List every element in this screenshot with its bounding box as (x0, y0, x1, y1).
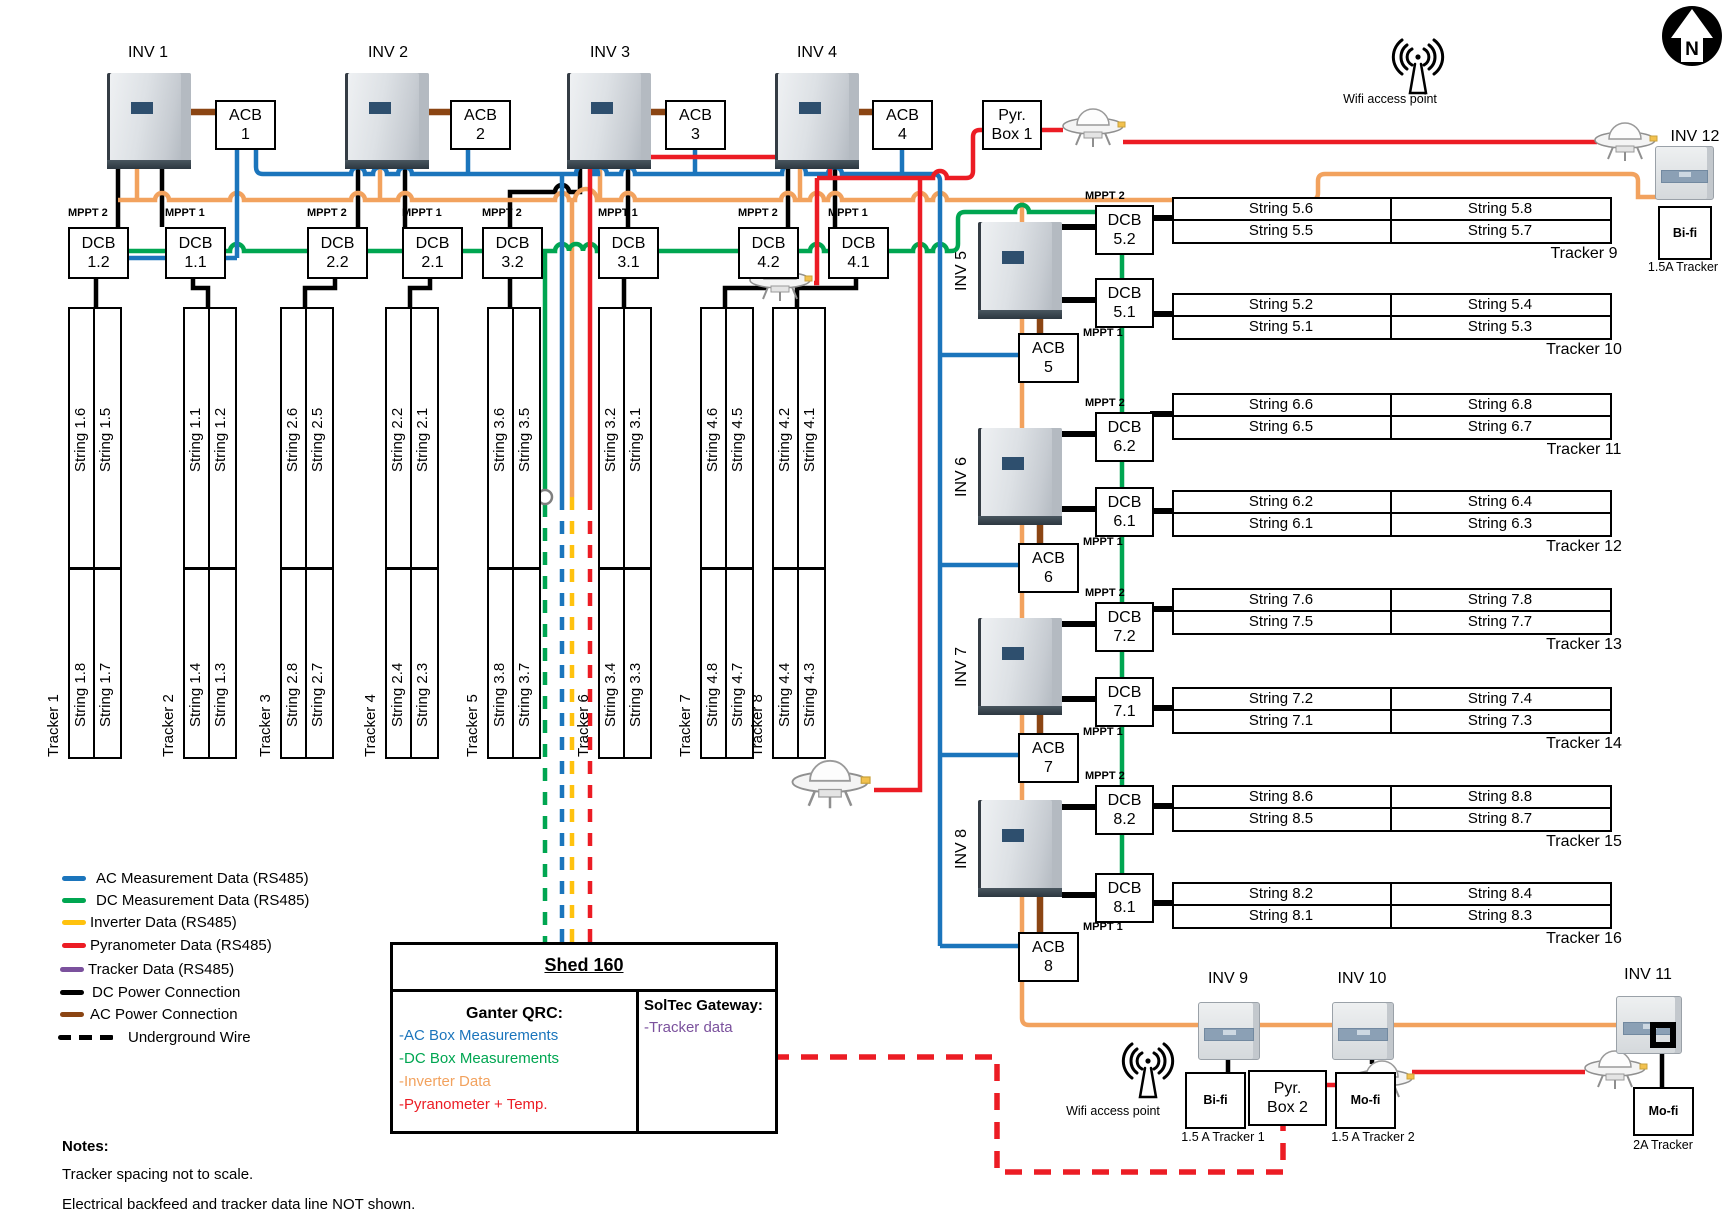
dcb-label: DCB (1108, 493, 1142, 512)
dcb-label: DCB (1108, 683, 1142, 702)
tracker-15-label: Tracker 15 (1524, 833, 1644, 851)
acb-label: ACB (679, 106, 712, 125)
ganter-item: -DC Box Measurements (399, 1050, 559, 1067)
legend-item: Underground Wire (128, 1029, 251, 1046)
dcb-7-1-box: DCB7.1 (1095, 677, 1154, 727)
mppt-label: MPPT 2 (307, 207, 347, 219)
inv-8-label: INV 8 (950, 806, 976, 892)
legend-swatch-ac (62, 876, 86, 881)
mppt-label: MPPT 1 (1083, 327, 1123, 339)
mppt-label: MPPT 2 (68, 207, 108, 219)
inv-5-label: INV 5 (950, 228, 976, 314)
mppt-label: MPPT 2 (1085, 770, 1125, 782)
string-cell: String 7.3 (1393, 711, 1607, 730)
string-cell: String 6.2 (1174, 492, 1388, 511)
inverter-image (978, 800, 1062, 897)
acb-label: ACB (464, 106, 497, 125)
ganter-title: Ganter QRC: (393, 1005, 636, 1023)
svg-text:N: N (1685, 39, 1699, 60)
tracker-sub-label: 1.5 A Tracker 1 (1168, 1130, 1278, 1144)
notes-line: Tracker spacing not to scale. (62, 1166, 253, 1183)
dcb-label: DCB (842, 234, 876, 253)
dcb-number: 8.1 (1113, 898, 1135, 917)
string-label: String 2.5 (305, 385, 330, 495)
dcb-label: DCB (1108, 418, 1142, 437)
inv-1-label: INV 1 (108, 44, 188, 62)
legend-item: AC Measurement Data (RS485) (96, 870, 309, 887)
pyr-box-1: Pyr.Box 1 (982, 100, 1042, 150)
dcb-label: DCB (496, 234, 530, 253)
dcb-6-1-box: DCB6.1 (1095, 487, 1154, 537)
mo-fi-box: Mo-fi (1633, 1087, 1694, 1136)
inv-12-label: INV 12 (1660, 128, 1729, 146)
tracker-15-table: String 8.6 String 8.8 String 8.5 String … (1172, 785, 1612, 832)
mppt-label: MPPT 1 (402, 207, 442, 219)
mppt-label: MPPT 1 (828, 207, 868, 219)
string-label: String 1.7 (93, 640, 118, 750)
inverter-image (1655, 146, 1714, 200)
dcb-number: 3.2 (501, 253, 523, 272)
ganter-item: -Inverter Data (399, 1073, 491, 1090)
dcb-number: 7.2 (1113, 627, 1135, 646)
dcb-label: DCB (1108, 879, 1142, 898)
tracker-6-label: Tracker 6 (572, 665, 596, 757)
dcb-2-1-box: DCB2.1 (402, 227, 463, 279)
legend-item: DC Power Connection (92, 984, 240, 1001)
inv-11-connector (1650, 1022, 1676, 1048)
string-cell: String 6.5 (1174, 417, 1388, 436)
string-label: String 4.4 (772, 640, 797, 750)
pyr-box-line1: Pyr. (1274, 1079, 1302, 1098)
dcb-number: 6.1 (1113, 512, 1135, 531)
inv-10-label: INV 10 (1327, 970, 1397, 988)
acb-3-box: ACB3 (665, 100, 726, 150)
dcb-number: 6.2 (1113, 437, 1135, 456)
tracker-2-label: Tracker 2 (157, 665, 181, 757)
inverter-image (1198, 1002, 1260, 1060)
inverter-image (978, 618, 1062, 715)
string-cell: String 7.6 (1174, 590, 1388, 609)
acb-2-box: ACB2 (450, 100, 511, 150)
string-label: String 3.5 (512, 385, 537, 495)
dcb-label: DCB (321, 234, 355, 253)
string-cell: String 8.7 (1393, 809, 1607, 828)
string-label: String 1.1 (183, 385, 208, 495)
wifi-icon (1123, 1044, 1172, 1097)
string-cell: String 6.3 (1393, 514, 1607, 533)
string-cell: String 8.5 (1174, 809, 1388, 828)
tracker-13-label: Tracker 13 (1524, 636, 1644, 654)
tracker-12-label: Tracker 12 (1524, 538, 1644, 556)
dcb-2-2-box: DCB2.2 (307, 227, 368, 279)
mppt-label: MPPT 2 (1085, 587, 1125, 599)
dcb-number: 2.1 (421, 253, 443, 272)
string-cell: String 7.4 (1393, 689, 1607, 708)
string-label: String 4.3 (797, 640, 822, 750)
legend-swatch-dc (62, 898, 86, 903)
mppt-label: MPPT 1 (1083, 726, 1123, 738)
string-label: String 2.6 (280, 385, 305, 495)
solar-plant-wiring-diagram: N INV 1 INV 2 INV 3 INV 4 ACB1 ACB2 ACB3… (0, 0, 1729, 1222)
string-label: String 4.6 (700, 385, 725, 495)
acb-6-box: ACB6 (1018, 543, 1079, 593)
dcb-4-1-box: DCB4.1 (828, 227, 889, 279)
string-label: String 3.4 (598, 640, 623, 750)
pyr-box-line1: Pyr. (998, 106, 1026, 125)
acb-number: 7 (1044, 758, 1053, 777)
tracker-11-label: Tracker 11 (1524, 441, 1644, 459)
string-cell: String 6.1 (1174, 514, 1388, 533)
dcb-7-2-box: DCB7.2 (1095, 602, 1154, 652)
inverter-image (775, 73, 859, 169)
acb-number: 1 (241, 125, 250, 144)
tracker-sub-label: 2A Tracker (1618, 1138, 1708, 1152)
dcb-1-2-box: DCB1.2 (68, 227, 129, 279)
wifi-access-point-label: Wifi access point (1315, 92, 1465, 106)
string-cell: String 8.1 (1174, 906, 1388, 925)
dcb-number: 5.1 (1113, 303, 1135, 322)
string-label: String 3.6 (487, 385, 512, 495)
tracker-11-table: String 6.6 String 6.8 String 6.5 String … (1172, 393, 1612, 440)
dcb-number: 1.2 (87, 253, 109, 272)
acb-number: 3 (691, 125, 700, 144)
acb-5-box: ACB5 (1018, 333, 1079, 383)
inverter-image (978, 222, 1062, 319)
mppt-label: MPPT 2 (1085, 397, 1125, 409)
dcb-number: 1.1 (184, 253, 206, 272)
string-label: String 1.4 (183, 640, 208, 750)
dcb-label: DCB (416, 234, 450, 253)
inv-11-label: INV 11 (1613, 966, 1683, 984)
string-label: String 3.8 (487, 640, 512, 750)
string-label: String 2.3 (410, 640, 435, 750)
bi-fi-label: Bi-fi (1673, 224, 1697, 243)
mppt-label: MPPT 1 (598, 207, 638, 219)
dcb-number: 7.1 (1113, 702, 1135, 721)
acb-label: ACB (229, 106, 262, 125)
string-label: String 2.1 (410, 385, 435, 495)
string-cell: String 6.6 (1174, 395, 1388, 414)
dcb-number: 2.2 (326, 253, 348, 272)
string-label: String 4.8 (700, 640, 725, 750)
acb-number: 6 (1044, 568, 1053, 587)
string-label: String 1.5 (93, 385, 118, 495)
legend-swatch-inverter (62, 920, 86, 925)
string-cell: String 8.2 (1174, 884, 1388, 903)
bi-fi-box: Bi-fi (1185, 1072, 1246, 1129)
string-label: String 4.5 (725, 385, 750, 495)
acb-label: ACB (886, 106, 919, 125)
string-label: String 1.8 (68, 640, 93, 750)
acb-label: ACB (1032, 739, 1065, 758)
tracker-5-label: Tracker 5 (461, 665, 485, 757)
string-cell: String 5.4 (1393, 295, 1607, 314)
inverter-image (567, 73, 651, 169)
tracker-13-table: String 7.6 String 7.8 String 7.5 String … (1172, 588, 1612, 635)
dcb-6-2-box: DCB6.2 (1095, 412, 1154, 462)
string-cell: String 7.1 (1174, 711, 1388, 730)
string-cell: String 8.8 (1393, 787, 1607, 806)
wifi-access-point-label: Wifi access point (1038, 1104, 1188, 1118)
wifi-icon (1393, 40, 1442, 93)
dcb-label: DCB (612, 234, 646, 253)
dcb-3-1-box: DCB3.1 (598, 227, 659, 279)
string-cell: String 5.8 (1393, 199, 1607, 218)
mppt-label: MPPT 1 (165, 207, 205, 219)
acb-number: 2 (476, 125, 485, 144)
legend-swatch-dc-power (60, 990, 84, 995)
string-cell: String 5.1 (1174, 317, 1388, 336)
string-label: String 1.2 (208, 385, 233, 495)
acb-number: 5 (1044, 358, 1053, 377)
mppt-label: MPPT 2 (482, 207, 522, 219)
notes-line: Electrical backfeed and tracker data lin… (62, 1196, 415, 1213)
dcb-number: 4.2 (757, 253, 779, 272)
tracker-4-label: Tracker 4 (359, 665, 383, 757)
dcb-label: DCB (82, 234, 116, 253)
string-cell: String 6.8 (1393, 395, 1607, 414)
tracker-1-label: Tracker 1 (42, 665, 66, 757)
string-cell: String 6.7 (1393, 417, 1607, 436)
bi-fi-label: Bi-fi (1203, 1091, 1227, 1110)
acb-label: ACB (1032, 938, 1065, 957)
pyranometer-icon (1063, 109, 1125, 147)
string-cell: String 8.4 (1393, 884, 1607, 903)
legend-swatch-ac-power (60, 1012, 84, 1017)
string-cell: String 5.5 (1174, 221, 1388, 240)
dcb-3-2-box: DCB3.2 (482, 227, 543, 279)
string-cell: String 5.3 (1393, 317, 1607, 336)
string-cell: String 7.8 (1393, 590, 1607, 609)
inverter-image (1332, 1002, 1394, 1060)
string-label: String 1.6 (68, 385, 93, 495)
dcb-label: DCB (1108, 791, 1142, 810)
mo-fi-label: Mo-fi (1351, 1091, 1381, 1110)
legend-item: Inverter Data (RS485) (90, 914, 237, 931)
soltec-item: -Tracker data (644, 1019, 733, 1036)
acb-1-box: ACB1 (215, 100, 276, 150)
tracker-10-table: String 5.2 String 5.4 String 5.1 String … (1172, 293, 1612, 340)
north-arrow-icon: N (1662, 6, 1722, 66)
string-cell: String 6.4 (1393, 492, 1607, 511)
legend-item: DC Measurement Data (RS485) (96, 892, 309, 909)
mo-fi-box: Mo-fi (1335, 1072, 1396, 1129)
dcb-label: DCB (752, 234, 786, 253)
dcb-label: DCB (1108, 284, 1142, 303)
acb-label: ACB (1032, 549, 1065, 568)
inverter-image (345, 73, 429, 169)
dcb-5-2-box: DCB5.2 (1095, 205, 1154, 255)
tracker-16-table: String 8.2 String 8.4 String 8.1 String … (1172, 882, 1612, 929)
ganter-item: -Pyranometer + Temp. (399, 1096, 548, 1113)
inverter-image (978, 428, 1062, 525)
legend-item: Pyranometer Data (RS485) (90, 937, 272, 954)
string-cell: String 8.6 (1174, 787, 1388, 806)
legend-swatch-pyranometer (62, 943, 86, 948)
legend-item: AC Power Connection (90, 1006, 238, 1023)
dcb-8-2-box: DCB8.2 (1095, 785, 1154, 835)
shed-divider (636, 989, 639, 1131)
mppt-label: MPPT 1 (1083, 921, 1123, 933)
tracker-12-table: String 6.2 String 6.4 String 6.1 String … (1172, 490, 1612, 537)
dcb-label: DCB (1108, 211, 1142, 230)
string-label: String 3.3 (623, 640, 648, 750)
string-cell: String 5.6 (1174, 199, 1388, 218)
mo-fi-label: Mo-fi (1649, 1102, 1679, 1121)
string-label: String 3.2 (598, 385, 623, 495)
dcb-1-1-box: DCB1.1 (165, 227, 226, 279)
ganter-item: -AC Box Measurements (399, 1027, 558, 1044)
tracker-sub-label: 1.5 A Tracker 2 (1318, 1130, 1428, 1144)
pyranometer-icon (793, 761, 871, 809)
legend-swatch-underground (58, 1035, 114, 1040)
inv-6-label: INV 6 (950, 434, 976, 520)
tracker-8-label: Tracker 8 (746, 665, 770, 757)
mppt-label: MPPT 2 (1085, 190, 1125, 202)
acb-number: 8 (1044, 957, 1053, 976)
string-cell: String 5.7 (1393, 221, 1607, 240)
pyr-box-line2: Box 1 (992, 125, 1033, 144)
pyr-box-2: Pyr.Box 2 (1248, 1070, 1327, 1126)
string-cell: String 7.2 (1174, 689, 1388, 708)
acb-number: 4 (898, 125, 907, 144)
string-label: String 2.2 (385, 385, 410, 495)
dcb-5-1-box: DCB5.1 (1095, 278, 1154, 328)
string-cell: String 7.7 (1393, 612, 1607, 631)
string-label: String 3.7 (512, 640, 537, 750)
tracker-14-label: Tracker 14 (1524, 735, 1644, 753)
string-label: String 2.8 (280, 640, 305, 750)
string-label: String 2.7 (305, 640, 330, 750)
tracker-3-label: Tracker 3 (254, 665, 278, 757)
pyranometer-icon (1585, 1051, 1647, 1089)
tracker-16-label: Tracker 16 (1524, 930, 1644, 948)
dcb-number: 4.1 (847, 253, 869, 272)
bi-fi-box: Bi-fi (1658, 206, 1712, 260)
tracker-9-table: String 5.6 String 5.8 String 5.5 String … (1172, 197, 1612, 244)
pyranometer-icon (1595, 123, 1657, 161)
shed-divider (393, 989, 775, 992)
dcb-4-2-box: DCB4.2 (738, 227, 799, 279)
dcb-8-1-box: DCB8.1 (1095, 873, 1154, 923)
legend-swatch-tracker (60, 967, 84, 972)
mppt-label: MPPT 2 (738, 207, 778, 219)
string-label: String 4.1 (797, 385, 822, 495)
string-label: String 1.3 (208, 640, 233, 750)
inv-4-label: INV 4 (777, 44, 857, 62)
tracker-9-label: Tracker 9 (1524, 245, 1644, 263)
tracker-10-label: Tracker 10 (1524, 341, 1644, 359)
dcb-number: 3.1 (617, 253, 639, 272)
string-cell: String 5.2 (1174, 295, 1388, 314)
string-label: String 3.1 (623, 385, 648, 495)
dcb-number: 8.2 (1113, 810, 1135, 829)
notes-heading: Notes: (62, 1138, 109, 1155)
inv-9-label: INV 9 (1193, 970, 1263, 988)
inv-2-label: INV 2 (348, 44, 428, 62)
mppt-label: MPPT 1 (1083, 536, 1123, 548)
tracker-7-label: Tracker 7 (674, 665, 698, 757)
acb-4-box: ACB4 (872, 100, 933, 150)
inverter-image (107, 73, 191, 169)
dcb-number: 5.2 (1113, 230, 1135, 249)
inv-12-tracker-label: 1.5A Tracker (1628, 260, 1729, 274)
inv-7-label: INV 7 (950, 624, 976, 710)
string-cell: String 7.5 (1174, 612, 1388, 631)
shed-160-box: Shed 160 Ganter QRC: -AC Box Measurement… (390, 942, 778, 1134)
tracker-14-table: String 7.2 String 7.4 String 7.1 String … (1172, 687, 1612, 734)
acb-label: ACB (1032, 339, 1065, 358)
acb-8-box: ACB8 (1018, 932, 1079, 982)
inv-3-label: INV 3 (570, 44, 650, 62)
dcb-label: DCB (1108, 608, 1142, 627)
pyr-box-line2: Box 2 (1267, 1098, 1308, 1117)
legend-item: Tracker Data (RS485) (88, 961, 234, 978)
shed-title: Shed 160 (393, 955, 775, 976)
string-cell: String 8.3 (1393, 906, 1607, 925)
soltec-title: SolTec Gateway: (644, 997, 763, 1014)
string-label: String 4.2 (772, 385, 797, 495)
string-label: String 2.4 (385, 640, 410, 750)
acb-7-box: ACB7 (1018, 733, 1079, 783)
dcb-label: DCB (179, 234, 213, 253)
